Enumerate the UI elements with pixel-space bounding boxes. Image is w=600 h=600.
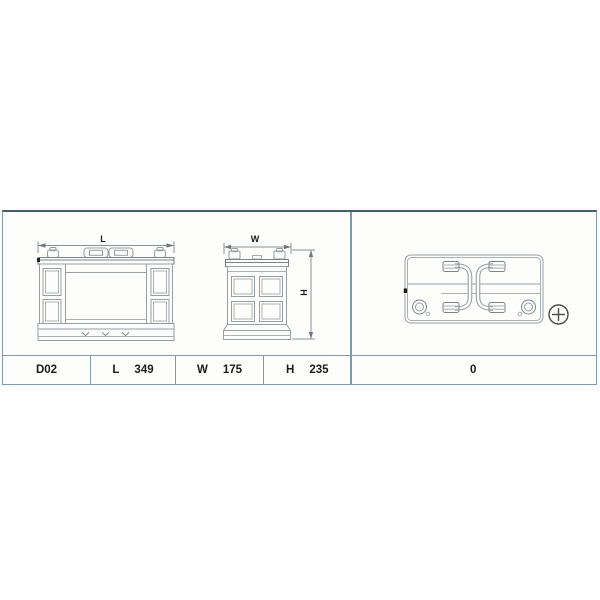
- width-dim-label: W: [251, 234, 260, 244]
- length-dim-label: L: [100, 234, 106, 244]
- side-rib-panels: [232, 277, 283, 322]
- front-view-drawing: L: [37, 234, 174, 341]
- top-view-drawing: [404, 255, 568, 324]
- top-carry-handle-right: [478, 262, 505, 313]
- terminal-left: [413, 300, 430, 316]
- front-carry-handles: [84, 248, 133, 258]
- front-terminal-posts: [48, 248, 166, 258]
- battery-spec-sheet: D02 L 349 W 175 H 235: [0, 0, 600, 600]
- height-dim-label: H: [299, 289, 309, 296]
- dim-arrow-left-icon: [38, 243, 46, 247]
- positive-polarity-icon: [549, 305, 568, 324]
- front-side-ribs: [43, 269, 169, 324]
- lid-mark: [37, 258, 40, 262]
- edge-mark: [404, 289, 407, 294]
- dim-arrow-right-icon: [167, 243, 175, 247]
- battery-technical-drawing: L: [0, 0, 600, 600]
- side-base: [224, 325, 291, 340]
- terminal-right: [518, 300, 535, 316]
- front-base: [38, 324, 174, 341]
- top-carry-handle-left: [443, 262, 470, 313]
- side-view-drawing: W H: [224, 234, 316, 340]
- side-terminal-posts: [229, 249, 285, 260]
